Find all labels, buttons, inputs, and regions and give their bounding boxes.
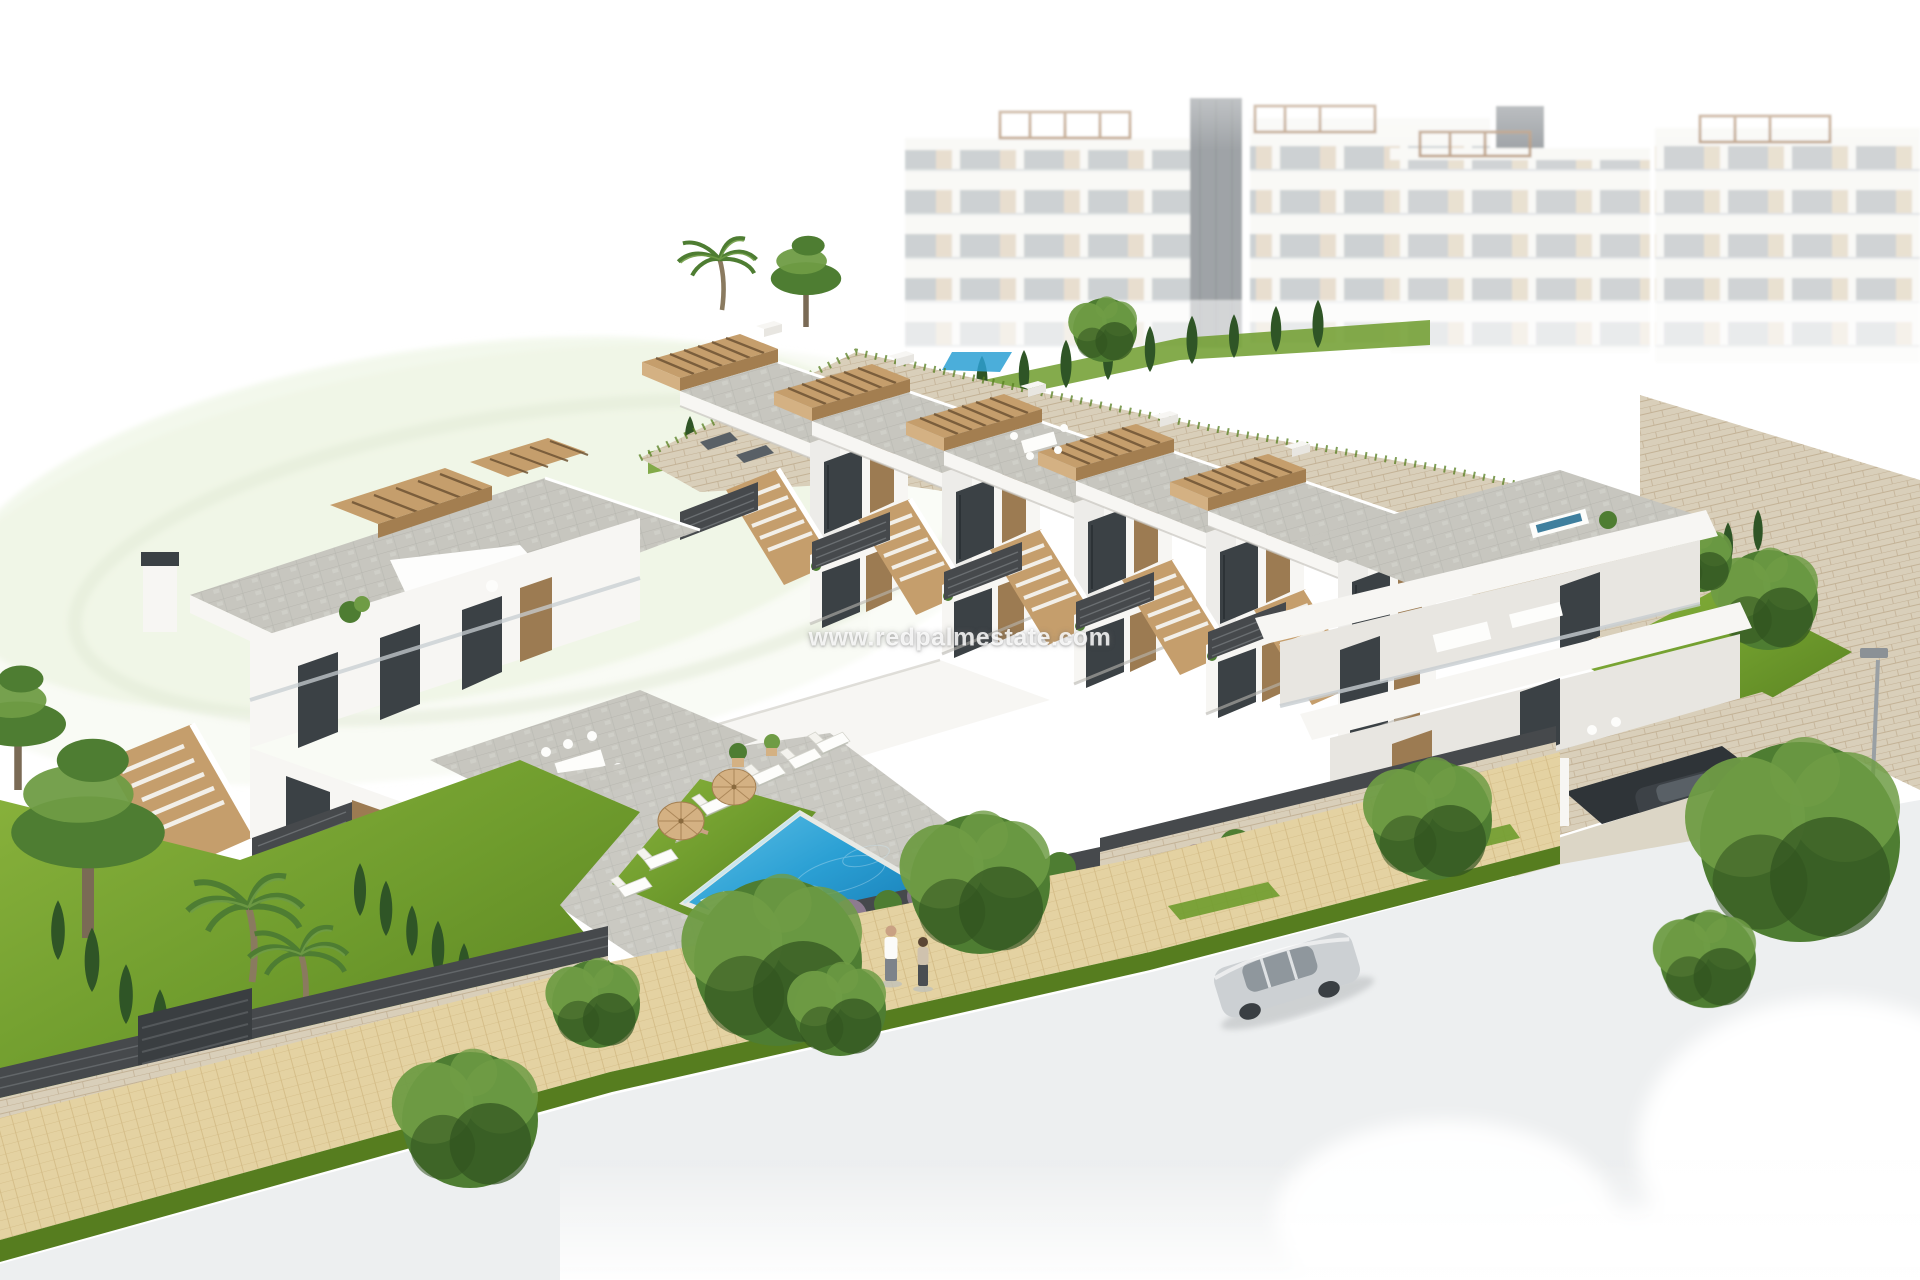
wicker-parasol-1 xyxy=(658,802,704,840)
top-haze-fade xyxy=(850,0,1920,150)
upper-terrace-pool xyxy=(942,352,1012,372)
render-scene: www.redpalmestate.com xyxy=(0,0,1920,1280)
wicker-parasol-2 xyxy=(712,769,756,805)
chimney xyxy=(143,560,177,632)
watermark-text: www.redpalmestate.com xyxy=(809,624,1112,653)
bottom-haze-fade xyxy=(560,1160,1920,1280)
